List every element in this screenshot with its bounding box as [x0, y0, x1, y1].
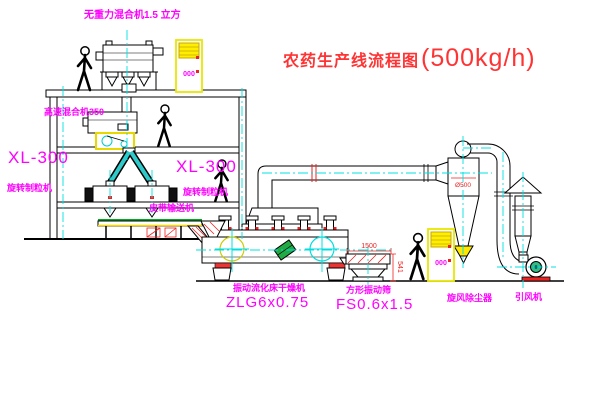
label-dryer-name: 振动流化床干燥机 — [233, 284, 305, 293]
label-granulator-left-model: XL-300 — [8, 149, 69, 166]
label-high-speed-mixer: 高速混合机350 — [44, 108, 104, 117]
label-induced-fan: 引风机 — [515, 293, 542, 302]
fluid-bed-dryer-drawing — [201, 208, 352, 280]
label-belt-conveyor: 皮带输送机 — [149, 204, 194, 213]
label-granulator-mid-name: 旋转制粒机 — [183, 188, 228, 197]
page-title: 农药生产线流程图 (500kg/h) — [283, 44, 536, 73]
title-chinese: 农药生产线流程图 — [283, 47, 419, 71]
label-cyclone: 旋风除尘器 — [447, 294, 492, 303]
person-figure — [411, 234, 425, 279]
control-cabinet-ground: 000 — [428, 229, 454, 281]
control-cabinet-roof: 000 — [176, 40, 202, 92]
high-speed-mixer-drawing — [83, 97, 137, 149]
cabinet-indicator: 000 — [435, 260, 447, 267]
person-figure — [78, 47, 91, 90]
process-flow-diagram: 000 000 1500 541 Ø500 — [0, 0, 600, 403]
label-dryer-model: ZLG6x0.75 — [226, 295, 309, 310]
square-sieve-drawing — [346, 248, 396, 281]
person-figure — [158, 105, 170, 146]
gravity-free-mixer-drawing — [96, 41, 163, 92]
belt-conveyor-drawing — [98, 220, 213, 244]
label-sieve-model: FS0.6x1.5 — [336, 297, 413, 312]
cabinet-indicator: 000 — [183, 71, 195, 78]
label-granulator-left-name: 旋转制粒机 — [7, 184, 52, 193]
label-sieve-name: 方形振动筛 — [346, 286, 391, 295]
sieve-height-dimension: 541 — [396, 261, 403, 273]
cyclone-diameter-dimension: Ø500 — [455, 182, 471, 189]
sieve-length-dimension: 1500 — [361, 243, 377, 250]
label-gravity-free-mixer: 无重力混合机1.5 立方 — [84, 11, 181, 21]
exhaust-duct-drawing — [258, 162, 448, 208]
induced-fan-drawing — [519, 255, 550, 281]
label-granulator-mid-model: XL-300 — [176, 158, 237, 175]
title-capacity: (500kg/h) — [421, 44, 536, 73]
